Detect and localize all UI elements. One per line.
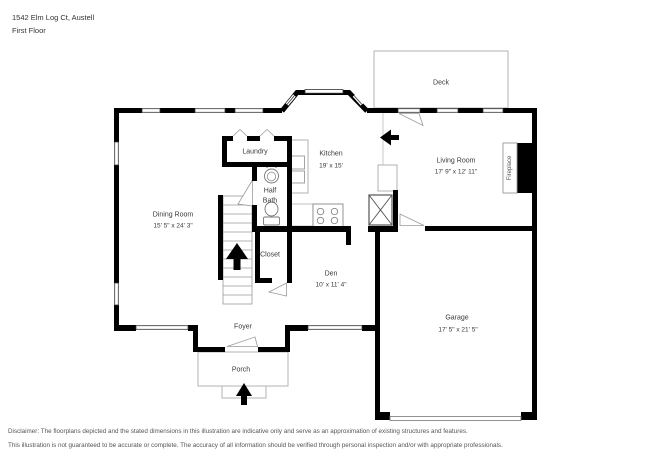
room-dims-dining-room: 15' 5" x 24' 3" (153, 223, 192, 230)
disclaimer-line-1: Disclaimer: The floorplans depicted and … (8, 428, 468, 435)
room-label-closet: Closet (260, 252, 280, 259)
bay-window-wall (282, 93, 367, 112)
front-door-swing (227, 337, 258, 347)
stairs-up-arrow (226, 243, 248, 270)
room-label-garage: Garage (445, 315, 468, 322)
laundry-bifold-left (233, 130, 247, 137)
fireplace-label: Fireplace (507, 156, 513, 181)
deck-door-swing (399, 114, 423, 126)
room-label-half-bath-1: Half (264, 188, 276, 195)
room-label-living-room: Living Room (437, 158, 476, 165)
half-bath-door-swing (238, 180, 253, 206)
room-label-kitchen: Kitchen (319, 151, 342, 158)
room-dims-den: 10' x 11' 4" (315, 282, 346, 289)
toilet-icon (264, 202, 280, 225)
floorplan-drawing (0, 0, 650, 460)
garage-door (390, 417, 521, 421)
room-dims-garage: 17' 5" x 21' 5" (438, 327, 477, 334)
garage-door-swing (400, 214, 424, 226)
closet-door-swing (269, 283, 287, 296)
room-dims-kitchen: 19' x 15' (319, 163, 343, 170)
room-label-foyer: Foyer (234, 324, 252, 331)
room-label-dining-room: Dining Room (153, 212, 193, 219)
laundry-bifold-right (260, 130, 274, 137)
hvac-unit-icon (369, 195, 392, 225)
pantry-cabinet (378, 165, 397, 191)
disclaimer-line-2: This illustration is not guaranteed to b… (8, 442, 503, 449)
room-label-deck: Deck (433, 80, 449, 87)
room-dims-living-room: 17' 9" x 12' 11" (435, 169, 477, 176)
room-label-half-bath-2: Bath (263, 198, 277, 205)
room-label-porch: Porch (232, 367, 250, 374)
room-label-den: Den (325, 271, 338, 278)
floorplan-page: 1542 Elm Log Ct, Austell First Floor (0, 0, 650, 460)
stove-icon (313, 204, 343, 227)
room-label-laundry: Laundry (242, 149, 267, 156)
